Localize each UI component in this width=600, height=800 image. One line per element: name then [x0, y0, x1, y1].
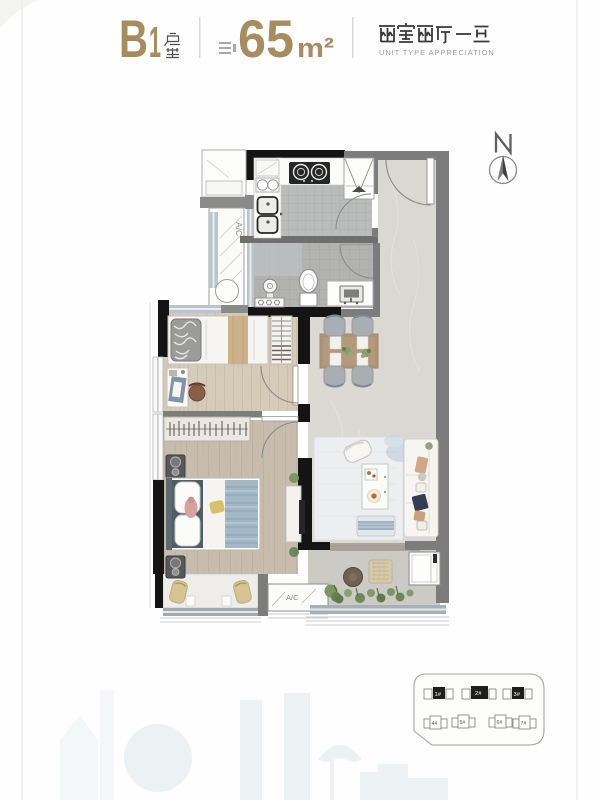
svg-text:1#: 1#: [435, 692, 442, 698]
svg-text:4#: 4#: [432, 721, 438, 727]
svg-text:B: B: [119, 10, 148, 69]
svg-text:2#: 2#: [475, 691, 482, 697]
svg-text:5#: 5#: [460, 720, 466, 726]
svg-text:65: 65: [238, 10, 294, 69]
svg-text:6#: 6#: [497, 720, 503, 726]
svg-text:A/C: A/C: [234, 222, 244, 236]
svg-text:m²: m²: [297, 33, 334, 63]
svg-text:UNIT TYPE APPRECIATION: UNIT TYPE APPRECIATION: [379, 48, 495, 57]
svg-text:7#: 7#: [521, 721, 527, 727]
svg-text:A/C: A/C: [286, 593, 299, 602]
svg-text:1: 1: [149, 18, 161, 67]
svg-text:3#: 3#: [514, 692, 521, 698]
